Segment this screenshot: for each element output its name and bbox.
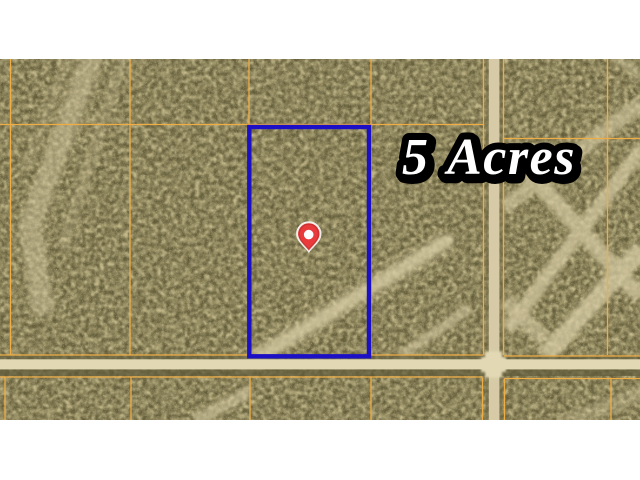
svg-text:5 Acres: 5 Acres [402, 129, 576, 186]
